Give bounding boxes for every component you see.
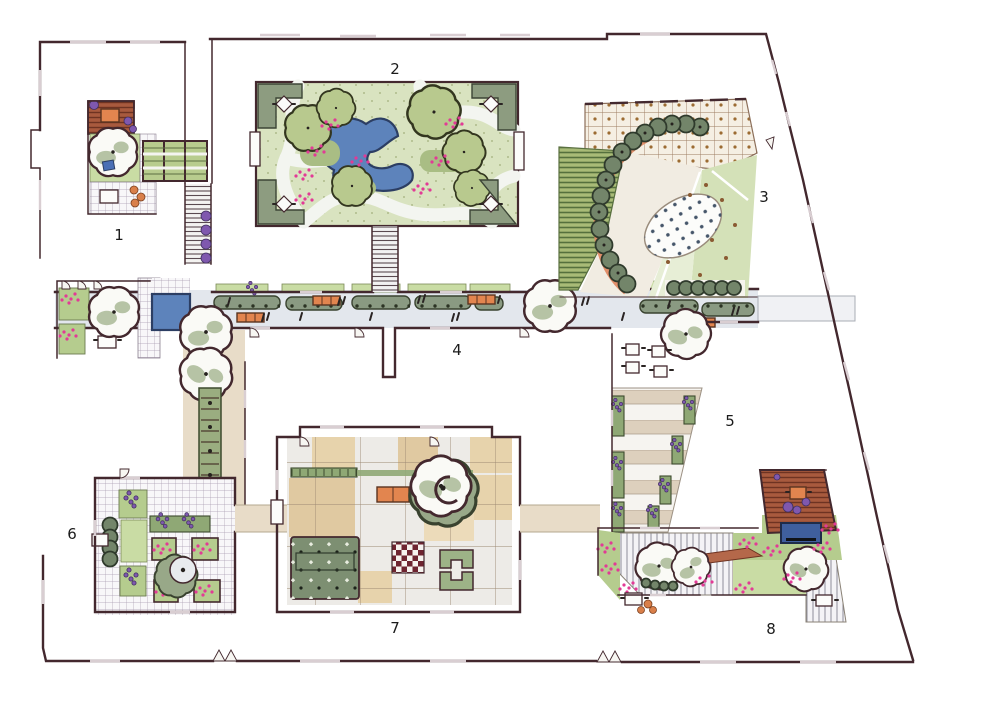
masterplan-drawing: 1 2 3 4 5 6 7 8 bbox=[0, 0, 1000, 707]
deck-table bbox=[101, 109, 119, 122]
area-1-entry-court bbox=[88, 101, 211, 265]
area-5-label: 5 bbox=[725, 412, 735, 430]
area-8-label: 8 bbox=[766, 620, 776, 638]
area-6-parterre-court bbox=[92, 469, 287, 615]
checkerboard-paving bbox=[392, 542, 424, 573]
pattern-beds bbox=[291, 537, 359, 599]
blue-seat bbox=[102, 160, 114, 171]
deck-table bbox=[790, 487, 806, 499]
area-5-terraces bbox=[611, 334, 702, 532]
path-to-area8 bbox=[520, 505, 600, 532]
court-tree bbox=[89, 287, 139, 337]
west-lawn bbox=[598, 530, 620, 600]
area-3-label: 3 bbox=[759, 188, 769, 206]
courtyard-stem-path bbox=[372, 226, 398, 292]
area-2-great-courtyard bbox=[250, 80, 524, 292]
patio-table bbox=[100, 190, 118, 203]
area-7-label: 7 bbox=[390, 619, 400, 637]
area-3-fan-garden bbox=[559, 99, 757, 298]
area-4-label: 4 bbox=[452, 341, 462, 359]
area-2-label: 2 bbox=[390, 60, 400, 78]
corridor-east-extension bbox=[758, 296, 855, 321]
west-pool-court bbox=[57, 278, 190, 358]
area-1-label: 1 bbox=[114, 226, 124, 244]
south-hedge-row bbox=[665, 280, 745, 296]
striped-walkway bbox=[185, 184, 211, 264]
area-7-paved-court bbox=[271, 427, 600, 612]
cafe-seating bbox=[622, 344, 673, 377]
pergola-trellis bbox=[143, 141, 207, 181]
area-6-label: 6 bbox=[67, 525, 77, 543]
site-plan-canvas: 1 2 3 4 5 6 7 8 bbox=[0, 0, 1000, 707]
